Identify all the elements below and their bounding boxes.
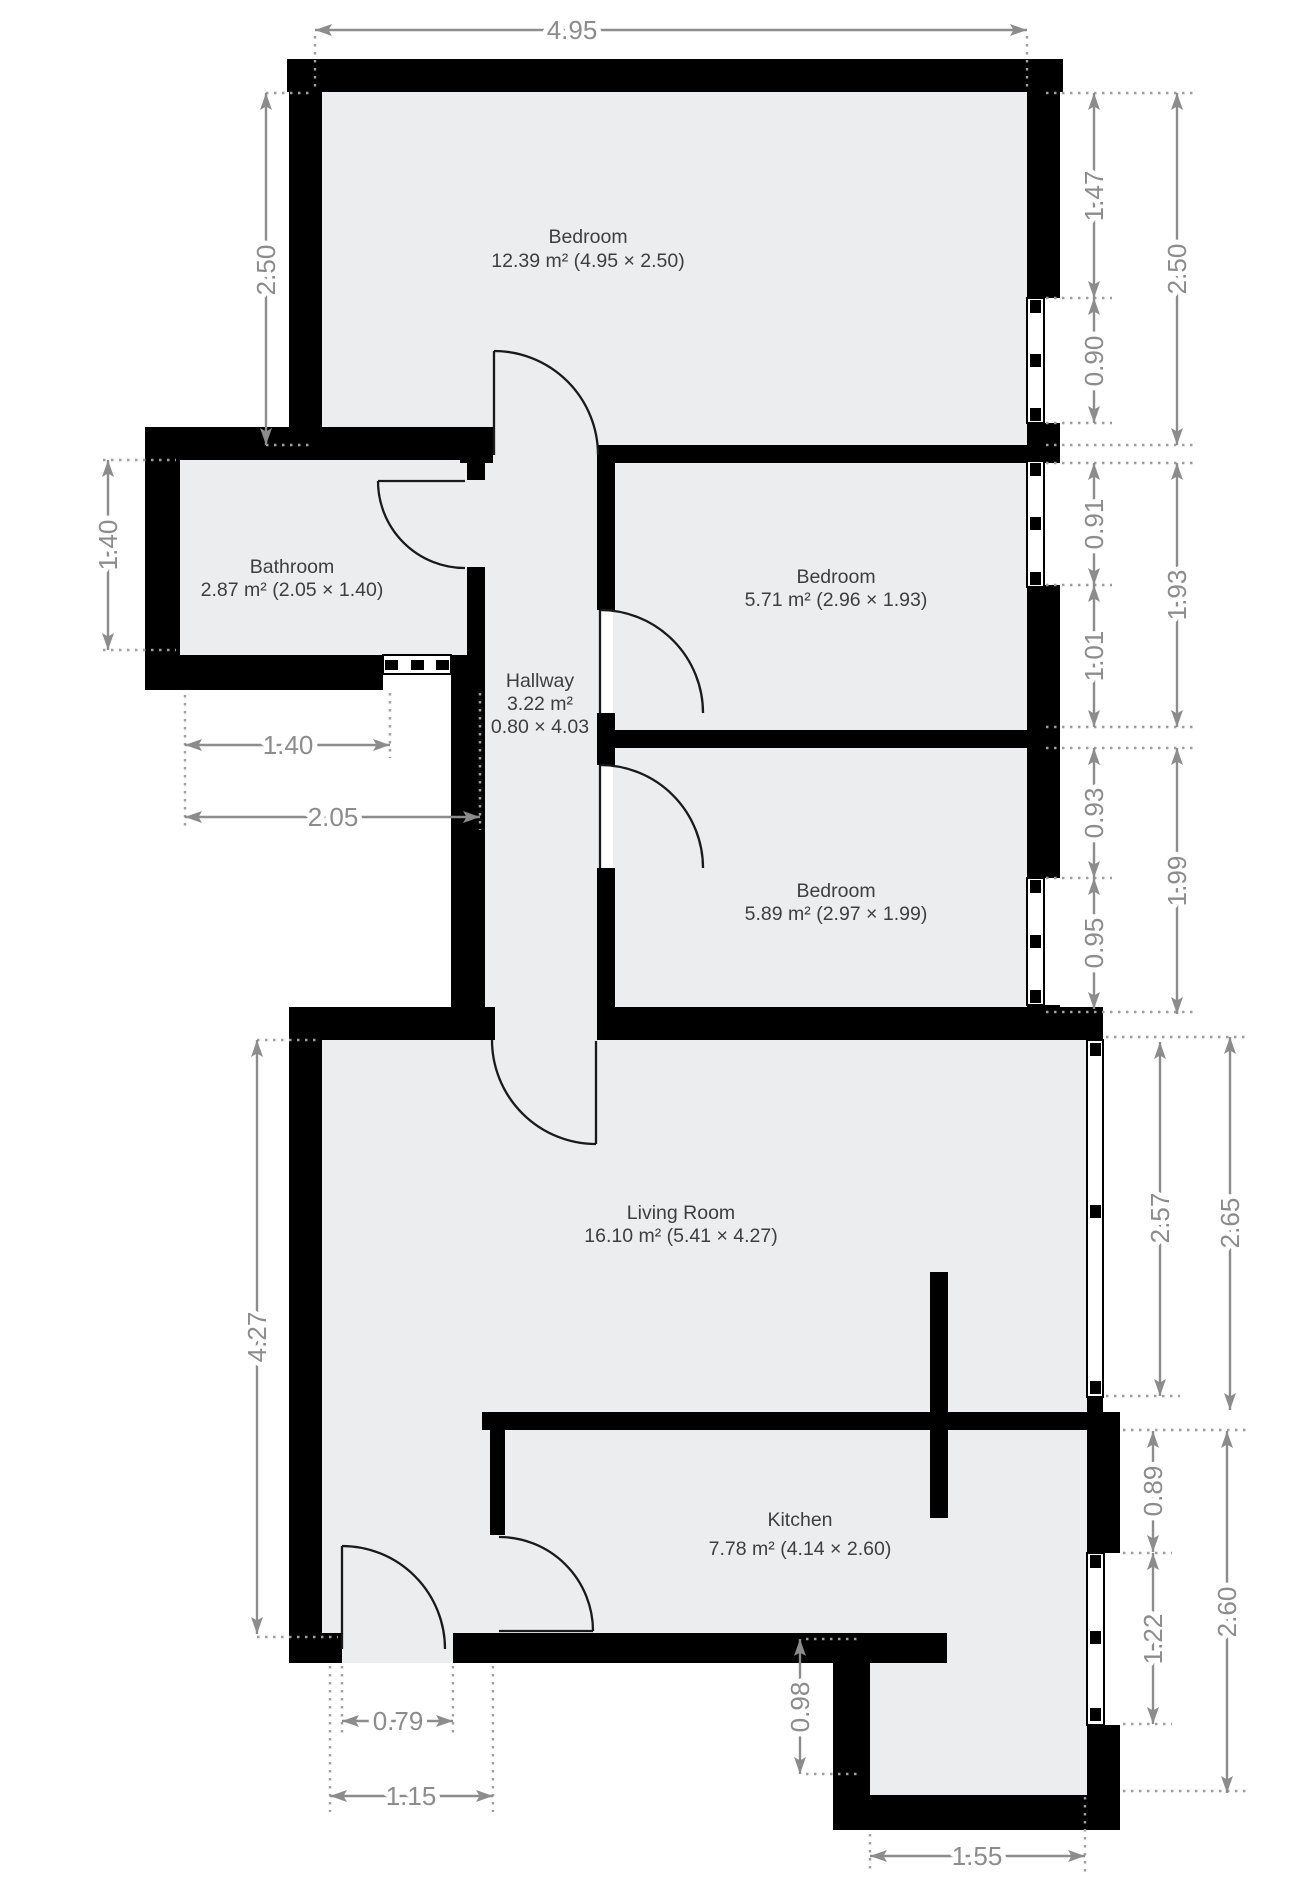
label-bedroom-top-name: Bedroom <box>548 226 627 248</box>
label-bathroom-area: 2.87 m² (2.05 × 1.40) <box>201 579 384 601</box>
floorplan-page: 4.95 2.50 1.47 0.90 2.50 1.40 1.40 2.05 … <box>0 0 1302 1884</box>
window-kitchen <box>1087 1553 1104 1725</box>
label-bedroom-small-name: Bedroom <box>796 880 875 902</box>
dim-top-width: 4.95 <box>547 15 598 45</box>
dim-kitchen-right-window: 1.22 <box>1138 1614 1168 1665</box>
wall-right-bed1-a <box>1027 92 1060 298</box>
wall-left-upper <box>289 92 322 445</box>
label-bathroom-name: Bathroom <box>250 556 335 578</box>
label-bedroom-top-area: 12.39 m² (4.95 × 2.50) <box>491 250 685 272</box>
label-hallway-dims: 0.80 × 4.03 <box>491 716 589 738</box>
wall-hall-right-a <box>597 463 615 610</box>
wall-kitchen-top <box>482 1412 1103 1430</box>
window-bedroom-top <box>1027 298 1044 423</box>
floor-entry-gap <box>342 1631 453 1663</box>
window-bedroom-small <box>1027 878 1044 1005</box>
wall-living-right-stub <box>1087 1397 1103 1412</box>
label-living-name: Living Room <box>627 1202 735 1224</box>
dim-bath-bottom-wall: 1.40 <box>263 730 314 760</box>
wall-bottom-b <box>453 1633 947 1663</box>
window-living <box>1087 1040 1103 1397</box>
dim-living-right-window: 2.57 <box>1145 1193 1175 1244</box>
wall-divider-bed1-b <box>597 445 1027 463</box>
label-bedroom-mid-name: Bedroom <box>796 566 875 588</box>
dim-living-left: 4.27 <box>242 1312 272 1363</box>
label-kitchen-name: Kitchen <box>767 1509 832 1531</box>
dim-bed3-right-total: 1.99 <box>1162 856 1192 907</box>
label-kitchen-area: 7.78 m² (4.14 × 2.60) <box>709 1538 892 1560</box>
label-hallway-area: 3.22 m² <box>507 693 574 715</box>
dim-bed1-left: 2.50 <box>251 245 281 296</box>
dim-bath-left: 1.40 <box>93 520 123 571</box>
floorplan-canvas: 4.95 2.50 1.47 0.90 2.50 1.40 1.40 2.05 … <box>0 0 1302 1884</box>
floor-kitchen-strip <box>503 1428 1089 1635</box>
wall-bath-bottom-a <box>145 655 383 690</box>
wall-hall-left-exterior <box>451 690 485 1007</box>
dim-bed1-right-window: 0.90 <box>1079 336 1109 387</box>
dim-entry-total: 1.15 <box>386 1781 437 1811</box>
dim-bed3-right-window: 0.95 <box>1079 918 1109 969</box>
wall-left-lower <box>289 1040 322 1663</box>
dim-bath-bottom-total: 2.05 <box>308 802 359 832</box>
window-bedroom-mid <box>1027 461 1044 587</box>
wall-kitchen-right-a <box>1087 1412 1120 1553</box>
label-hallway-name: Hallway <box>506 670 575 692</box>
wall-bath-top <box>145 427 493 460</box>
dim-entry-door: 0.79 <box>373 1706 424 1736</box>
dim-kitchen-step: 0.98 <box>785 1682 815 1733</box>
dim-living-right-total: 2.65 <box>1215 1198 1245 1249</box>
wall-kitchen-bottom <box>833 1795 1120 1830</box>
dim-bed2-right-lower: 1.01 <box>1079 631 1109 682</box>
wall-divider-bed2-bed3 <box>613 730 1027 748</box>
label-bedroom-small-area: 5.89 m² (2.97 × 1.99) <box>745 903 928 925</box>
dim-bed1-right-total: 2.50 <box>1162 244 1192 295</box>
floor-hall-living-gap <box>493 1005 599 1042</box>
wall-kitchen-door-stub <box>490 1412 505 1535</box>
wall-hall-right-c <box>597 868 615 1007</box>
wall-hall-left-b <box>467 567 485 690</box>
dim-bed2-right-total: 1.93 <box>1162 570 1192 621</box>
wall-kitchen-right-b <box>1087 1725 1120 1795</box>
wall-living-top-b <box>597 1007 1103 1040</box>
dim-kitchen-right-upper: 0.89 <box>1138 1466 1168 1517</box>
label-living-area: 16.10 m² (5.41 × 4.27) <box>584 1225 778 1247</box>
wall-top-exterior <box>287 59 1063 92</box>
dim-bed1-right-upper: 1.47 <box>1079 171 1109 222</box>
floor-bedroom-small <box>613 746 1029 1009</box>
label-bedroom-mid-area: 5.71 m² (2.96 × 1.93) <box>745 589 928 611</box>
wall-living-top-a <box>289 1007 495 1040</box>
wall-right-bed1-b <box>1027 423 1060 463</box>
wall-right-bed2 <box>1027 585 1060 878</box>
floor-bath-door-gap <box>465 478 487 569</box>
wall-bath-left <box>145 427 180 690</box>
dim-kitchen-ext: 1.55 <box>952 1841 1003 1871</box>
floor-kitchen-door-gap <box>488 1533 505 1635</box>
wall-hall-left-a <box>467 427 485 480</box>
dim-bed2-right-window: 0.91 <box>1079 499 1109 550</box>
wall-hall-right-b <box>597 713 615 765</box>
dim-kitchen-right-total: 2.60 <box>1212 1587 1242 1638</box>
wall-kitchen-partition <box>930 1272 948 1518</box>
window-bathroom <box>383 655 451 674</box>
dim-bed3-right-upper: 0.93 <box>1079 788 1109 839</box>
